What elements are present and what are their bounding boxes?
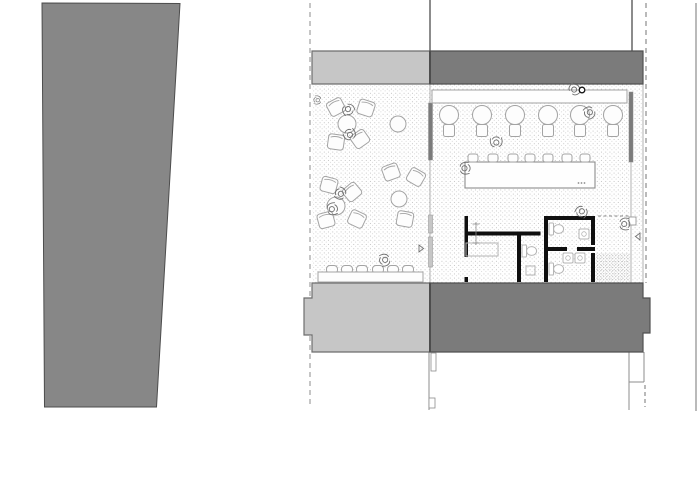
dining-chair xyxy=(608,125,619,137)
dining-chair xyxy=(510,125,521,137)
terrace-chair xyxy=(396,210,414,228)
table-dot xyxy=(584,182,586,184)
table-stool xyxy=(580,154,590,162)
dining-table-round xyxy=(571,106,590,125)
storefront-mullion-left xyxy=(429,103,433,160)
table-stool xyxy=(508,154,518,162)
canopy-upper-left xyxy=(312,51,430,84)
toilet xyxy=(522,245,537,257)
wall-segment xyxy=(517,236,521,283)
table-stool xyxy=(468,154,478,162)
storefront-mullion-right xyxy=(629,92,633,162)
dining-chair xyxy=(575,125,586,137)
table-dot xyxy=(581,182,583,184)
dining-table-round xyxy=(506,106,525,125)
dining-chair xyxy=(444,125,455,137)
table-stool xyxy=(525,154,535,162)
terrace-table-round xyxy=(391,191,407,207)
terrace-bench xyxy=(318,272,423,282)
column-marker xyxy=(579,87,585,93)
dining-table-round xyxy=(539,106,558,125)
entry-mat xyxy=(596,253,630,282)
table-stool xyxy=(543,154,553,162)
sink xyxy=(579,229,589,239)
wall-segment xyxy=(591,253,595,282)
wall-segment xyxy=(544,216,595,220)
dining-table-round xyxy=(604,106,623,125)
dining-chair xyxy=(543,125,554,137)
dining-table-round xyxy=(440,106,459,125)
wall-segment xyxy=(544,247,567,251)
wall-segment xyxy=(577,247,595,251)
communal-table xyxy=(465,162,595,188)
wall-segment xyxy=(591,216,595,245)
jamb-detail-a xyxy=(431,353,436,371)
table-stool xyxy=(562,154,572,162)
terrace-chair xyxy=(327,133,345,150)
back-counter xyxy=(432,90,627,103)
wall-band-lower-right xyxy=(430,283,650,352)
dining-table-round xyxy=(473,106,492,125)
wall-band-lower-left xyxy=(304,283,430,352)
floor-plan-sheet xyxy=(0,0,700,483)
adjacent-building-mass xyxy=(42,3,180,407)
terrace-door-left-a xyxy=(429,215,433,233)
table-stool xyxy=(488,154,498,162)
sink xyxy=(563,253,573,263)
wall-segment xyxy=(465,277,469,282)
sink xyxy=(575,253,585,263)
terrace-door-left-b xyxy=(429,237,433,267)
jamb-detail-b xyxy=(429,398,435,408)
building-mass xyxy=(42,3,180,407)
canopy-upper-right xyxy=(430,51,643,84)
dining-chair xyxy=(477,125,488,137)
table-dot xyxy=(578,182,580,184)
toilet xyxy=(549,263,564,275)
terrace-table-round xyxy=(390,116,406,132)
floor-plan-drawing xyxy=(0,0,700,483)
toilet xyxy=(549,223,564,235)
